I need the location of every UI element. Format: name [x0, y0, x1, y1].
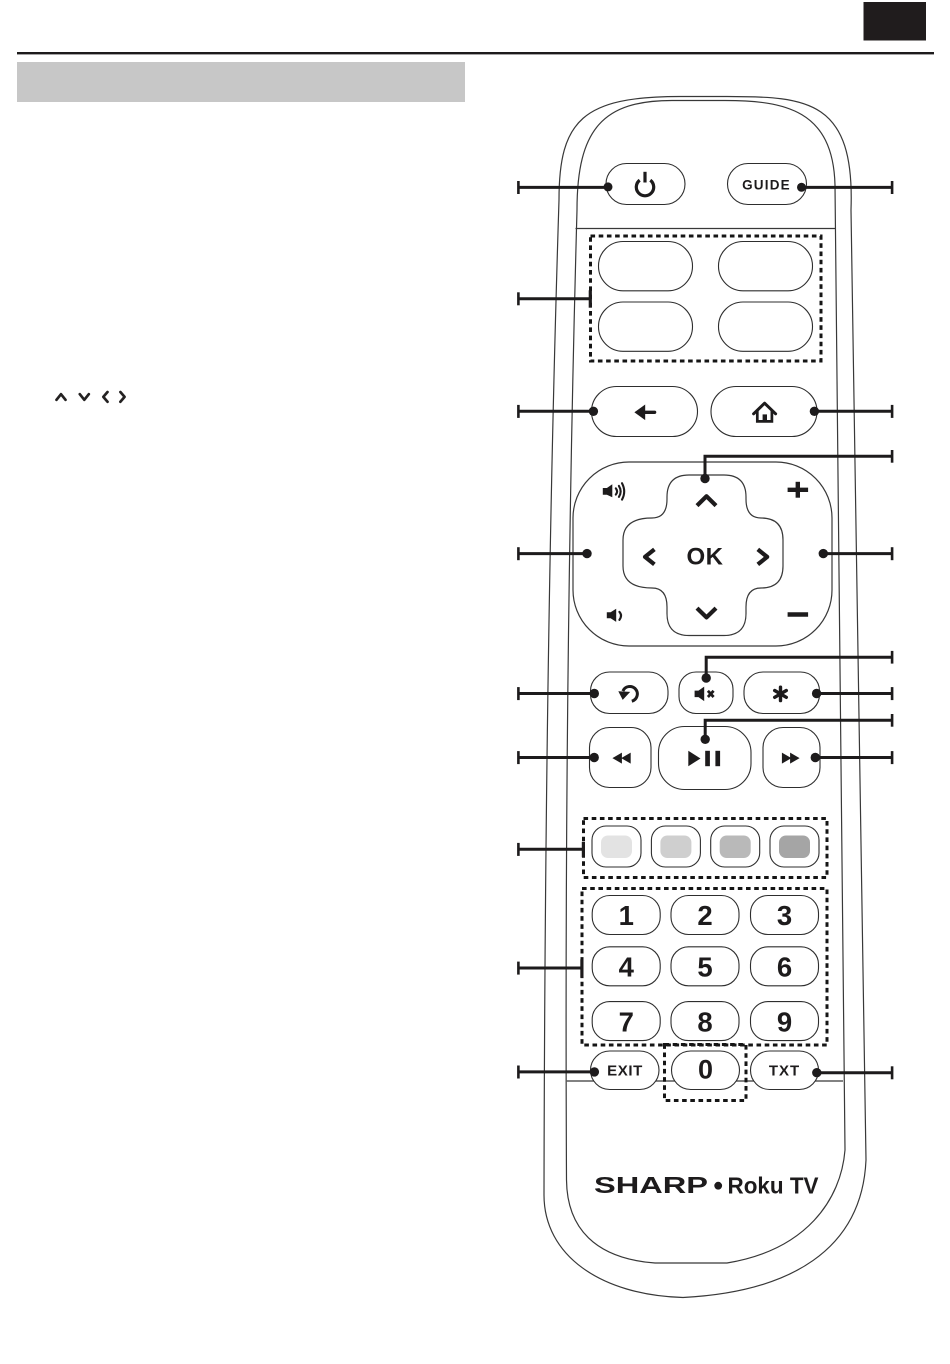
svg-text:6: 6	[777, 952, 792, 983]
svg-text:EXIT: EXIT	[607, 1063, 643, 1080]
svg-text:0: 0	[698, 1054, 713, 1084]
svg-text:4: 4	[619, 952, 635, 983]
svg-text:5: 5	[697, 952, 712, 983]
svg-text:2: 2	[697, 900, 712, 931]
svg-text:GUIDE: GUIDE	[742, 177, 791, 192]
svg-text:TXT: TXT	[769, 1063, 800, 1080]
svg-text:1: 1	[619, 900, 634, 931]
svg-text:9: 9	[777, 1006, 792, 1037]
svg-text:3: 3	[777, 900, 792, 931]
svg-text:OK: OK	[687, 544, 724, 571]
svg-text:7: 7	[619, 1006, 634, 1037]
svg-text:SHARP: SHARP	[594, 1172, 708, 1198]
svg-text:Roku TV: Roku TV	[728, 1173, 820, 1199]
svg-text:8: 8	[697, 1006, 712, 1037]
